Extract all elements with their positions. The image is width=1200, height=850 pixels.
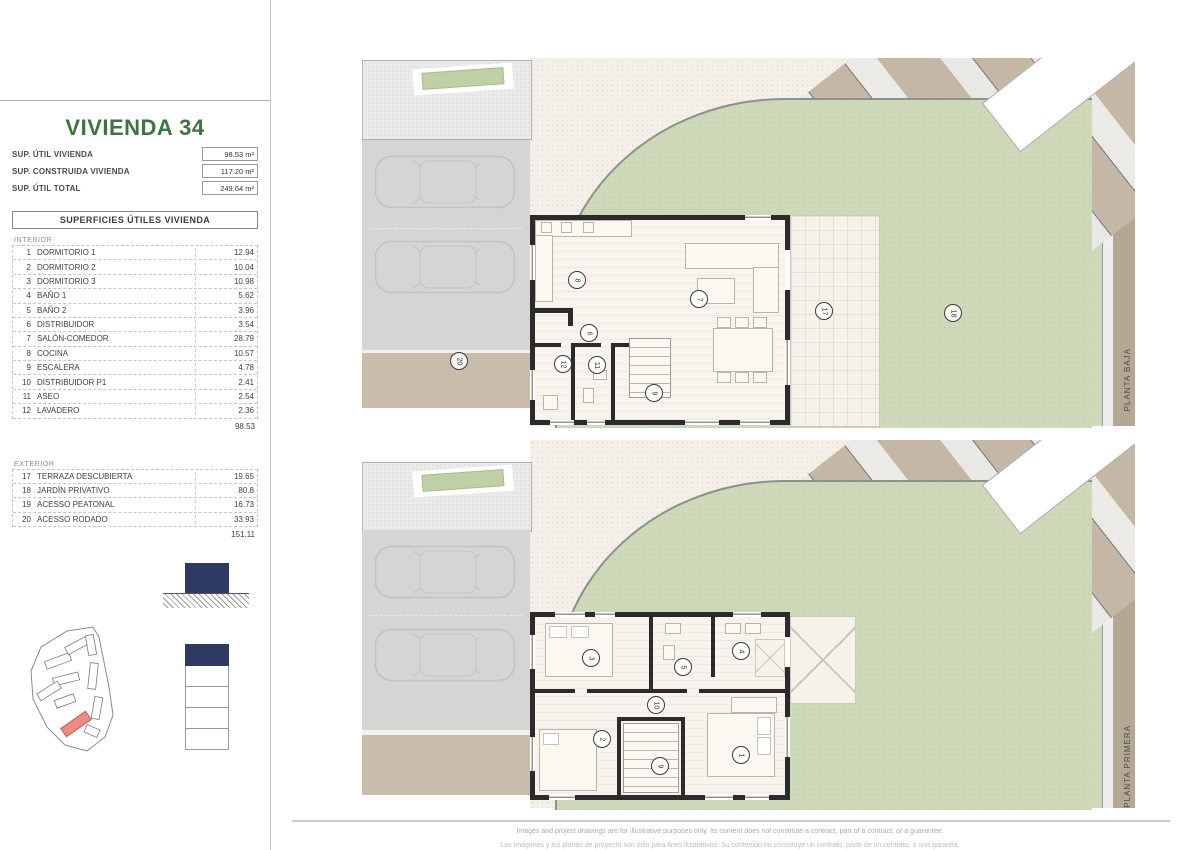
- kitchen-side-counter: [535, 235, 553, 302]
- areas-table-header: SUPERFICIES ÚTILES VIVIENDA: [12, 211, 258, 229]
- window: [705, 795, 733, 800]
- room-number-marker: 1: [732, 746, 750, 764]
- room-area: 2.36: [195, 406, 257, 415]
- room-area: 19.65: [195, 472, 257, 481]
- disclaimer-line-2: Las imágenes y los planos de proyecto so…: [290, 842, 1170, 849]
- room-name: ACESSO RODADO: [37, 515, 195, 524]
- summary-row: SUP. CONSTRUIDA VIVIENDA 117.20 m²: [12, 164, 258, 178]
- interior-wall: [617, 717, 621, 795]
- summary-value: 117.20 m²: [202, 164, 258, 178]
- table-row: 11ASEO2.54: [13, 390, 257, 404]
- row-number: 10: [13, 378, 37, 387]
- floor-cell: [185, 729, 229, 750]
- summary-value: 98.53 m²: [202, 147, 258, 161]
- planter-green: [421, 469, 504, 492]
- table-row: 8COCINA10.57: [13, 347, 257, 361]
- room-number-marker: 6: [580, 324, 598, 342]
- sidebar-divider: [270, 0, 271, 850]
- room-name: DORMITORIO 1: [37, 248, 195, 257]
- planter-notch: [412, 63, 514, 96]
- row-number: 7: [13, 334, 37, 343]
- room-number-marker: 7: [690, 290, 708, 308]
- upper-terrace: [790, 616, 856, 704]
- interior-wall: [699, 689, 785, 693]
- room-number-marker: 9: [645, 384, 663, 402]
- vehicle-access-driveway: [362, 735, 530, 795]
- table-row: 7SALÓN-COMEDOR28.79: [13, 332, 257, 346]
- window: [685, 420, 719, 425]
- floor-cell: [185, 687, 229, 708]
- room-area: 2.41: [195, 378, 257, 387]
- appliance: [583, 222, 594, 233]
- summary-row: SUP. ÚTIL VIVIENDA 98.53 m²: [12, 147, 258, 161]
- floor-cell: [185, 708, 229, 729]
- interior-wall: [681, 717, 685, 795]
- exterior-section-label: EXTERIOR: [14, 461, 258, 468]
- room-area: 80.8: [195, 486, 257, 495]
- chair: [753, 372, 767, 383]
- window: [550, 420, 574, 425]
- table-row: 12LAVADERO2.36: [13, 404, 257, 418]
- row-number: 17: [13, 472, 37, 481]
- page-title: VIVIENDA 34: [6, 115, 264, 141]
- row-number: 8: [13, 349, 37, 358]
- room-area: 12.94: [195, 248, 257, 257]
- row-number: 11: [13, 392, 37, 401]
- car-drawing-icon: [374, 628, 516, 682]
- exterior-total: 151.11: [12, 527, 258, 539]
- exterior-block: EXTERIOR 17TERRAZA DESCUBIERTA19.6518JAR…: [12, 461, 258, 540]
- row-number: 20: [13, 515, 37, 524]
- room-number-marker: 11: [588, 356, 606, 374]
- row-number: 3: [13, 277, 37, 286]
- sofa: [685, 243, 779, 269]
- room-name: DISTRIBUIDOR P1: [37, 378, 195, 387]
- room-number-marker: 18: [944, 304, 962, 322]
- public-pavement: [362, 462, 532, 532]
- interior-total: 98.53: [12, 419, 258, 431]
- interior-wall: [571, 343, 601, 347]
- chair: [717, 372, 731, 383]
- shower: [755, 639, 785, 677]
- table-row: 18JARDÍN PRIVATIVO80.8: [13, 484, 257, 498]
- row-number: 19: [13, 500, 37, 509]
- interior-section-label: INTERIOR: [14, 237, 258, 244]
- window: [733, 612, 761, 617]
- room-area: 4.78: [195, 363, 257, 372]
- room-number-marker: 8: [568, 271, 586, 289]
- areas-table: SUPERFICIES ÚTILES VIVIENDA INTERIOR 1DO…: [12, 211, 258, 539]
- sink: [745, 623, 761, 634]
- window: [740, 420, 770, 425]
- row-number: 9: [13, 363, 37, 372]
- row-number: 6: [13, 320, 37, 329]
- room-name: DISTRIBUIDOR: [37, 320, 195, 329]
- room-name: COCINA: [37, 349, 195, 358]
- interior-wall: [611, 343, 615, 420]
- floor-level-indicator: [185, 644, 229, 750]
- toilet: [583, 388, 594, 403]
- room-area: 2.54: [195, 392, 257, 401]
- room-number-marker: 9: [651, 757, 669, 775]
- chair: [735, 372, 749, 383]
- room-name: SALÓN-COMEDOR: [37, 334, 195, 343]
- staircase: [623, 723, 679, 793]
- table-row: 20ACESSO RODADO33.93: [13, 513, 257, 527]
- table-row: 4BAÑO 15.62: [13, 289, 257, 303]
- window: [595, 612, 615, 617]
- room-area: 16.73: [195, 500, 257, 509]
- vehicle-access-driveway: [362, 353, 530, 408]
- pillow: [757, 717, 771, 735]
- summary-label: SUP. ÚTIL TOTAL: [12, 184, 81, 193]
- parking-area: [362, 140, 530, 350]
- interior-rows: 1DORMITORIO 112.942DORMITORIO 210.043DOR…: [12, 245, 258, 419]
- chair: [717, 317, 731, 328]
- sink: [725, 623, 741, 634]
- window: [530, 370, 535, 400]
- row-number: 2: [13, 263, 37, 272]
- room-area: 3.54: [195, 320, 257, 329]
- sink: [665, 623, 681, 634]
- table-row: 6DISTRIBUIDOR3.54: [13, 318, 257, 332]
- appliance: [561, 222, 572, 233]
- floor-cell: [185, 666, 229, 687]
- info-sidebar: VIVIENDA 34 SUP. ÚTIL VIVIENDA 98.53 m² …: [0, 100, 270, 850]
- room-name: LAVADERO: [37, 406, 195, 415]
- summary-label: SUP. ÚTIL VIVIENDA: [12, 150, 93, 159]
- room-name: BAÑO 2: [37, 306, 195, 315]
- washer: [543, 395, 558, 410]
- table-row: 17TERRAZA DESCUBIERTA19.65: [13, 470, 257, 484]
- dining-table: [713, 328, 773, 372]
- room-area: 3.96: [195, 306, 257, 315]
- table-row: 5BAÑO 23.96: [13, 304, 257, 318]
- window: [530, 737, 535, 771]
- room-area: 10.04: [195, 263, 257, 272]
- interior-wall: [535, 689, 575, 693]
- room-number-marker: 12: [554, 355, 572, 373]
- window: [530, 635, 535, 669]
- plan-sheet: VIVIENDA 34 SUP. ÚTIL VIVIENDA 98.53 m² …: [0, 0, 1200, 850]
- car-drawing-icon: [374, 545, 516, 599]
- pillow: [571, 626, 589, 638]
- window: [555, 612, 585, 617]
- planter-notch: [412, 465, 514, 498]
- interior-wall: [535, 343, 561, 347]
- parking-stall-line: [370, 615, 522, 616]
- parking-area: [362, 530, 530, 730]
- interior-wall: [711, 617, 715, 677]
- section-diagram-ground-hatch: [163, 593, 249, 608]
- interior-wall: [617, 717, 685, 721]
- table-row: 9ESCALERA4.78: [13, 361, 257, 375]
- footer-divider: [292, 820, 1170, 822]
- pillow: [549, 626, 567, 638]
- room-area: 10.98: [195, 277, 257, 286]
- window: [745, 215, 771, 220]
- room-area: 5.62: [195, 291, 257, 300]
- room-name: DORMITORIO 3: [37, 277, 195, 286]
- room-area: 28.79: [195, 334, 257, 343]
- public-pavement: [362, 60, 532, 140]
- room-area: 33.93: [195, 515, 257, 524]
- table-row: 2DORMITORIO 210.04: [13, 260, 257, 274]
- row-number: 12: [13, 406, 37, 415]
- plan-label: PLANTA BAJA: [1123, 348, 1132, 411]
- room-area: 10.57: [195, 349, 257, 358]
- closet: [731, 697, 777, 713]
- room-number-marker: 2: [593, 730, 611, 748]
- floor-cell-highlighted: [185, 644, 229, 666]
- room-number-marker: 20: [450, 352, 468, 370]
- balcony-door-opening: [785, 637, 790, 667]
- floor-plan-planta-baja: PLANTA BAJA 87612119171820: [290, 58, 1135, 438]
- summary-value: 249.64 m²: [202, 181, 258, 195]
- toilet: [663, 645, 675, 660]
- row-number: 4: [13, 291, 37, 300]
- room-name: DORMITORIO 2: [37, 263, 195, 272]
- window: [745, 795, 769, 800]
- pillow: [757, 737, 771, 755]
- floor-plan-planta-primera: PLANTA PRIMERA 35410291: [290, 440, 1135, 820]
- window: [549, 795, 575, 800]
- room-name: ACESSO PEATONAL: [37, 500, 195, 509]
- interior-wall: [568, 308, 573, 326]
- plan-label: PLANTA PRIMERA: [1123, 725, 1132, 808]
- room-name: JARDÍN PRIVATIVO: [37, 486, 195, 495]
- summary-label: SUP. CONSTRUIDA VIVIENDA: [12, 167, 130, 176]
- row-number: 5: [13, 306, 37, 315]
- car-drawing-icon: [374, 240, 516, 294]
- room-number-marker: 10: [647, 696, 665, 714]
- interior-wall: [571, 343, 575, 420]
- section-diagram-block: [185, 563, 229, 593]
- chair: [753, 317, 767, 328]
- interior-wall: [587, 689, 687, 693]
- window: [587, 420, 605, 425]
- interior-wall: [649, 617, 653, 689]
- planter-green: [421, 67, 504, 90]
- site-location-map: [25, 623, 135, 763]
- window: [530, 245, 535, 280]
- exterior-rows: 17TERRAZA DESCUBIERTA19.6518JARDÍN PRIVA…: [12, 469, 258, 528]
- sofa-chaise: [753, 267, 779, 313]
- table-row: 10DISTRIBUIDOR P12.41: [13, 375, 257, 389]
- table-row: 3DORMITORIO 310.98: [13, 275, 257, 289]
- table-row: 19ACESSO PEATONAL16.73: [13, 498, 257, 512]
- row-number: 18: [13, 486, 37, 495]
- disclaimer-line-1: Images and project drawings are for illu…: [290, 828, 1170, 835]
- car-drawing-icon: [374, 155, 516, 209]
- summary-row: SUP. ÚTIL TOTAL 249.64 m²: [12, 181, 258, 195]
- room-name: ESCALERA: [37, 363, 195, 372]
- window: [785, 717, 790, 757]
- room-number-marker: 4: [732, 642, 750, 660]
- open-terrace: [790, 215, 880, 427]
- appliance: [541, 222, 552, 233]
- parking-stall-line: [370, 228, 522, 229]
- room-number-marker: 3: [582, 649, 600, 667]
- terrace-door-opening: [785, 250, 790, 290]
- room-number-marker: 17: [815, 302, 833, 320]
- room-number-marker: 5: [674, 658, 692, 676]
- pillow: [543, 733, 559, 745]
- room-name: TERRAZA DESCUBIERTA: [37, 472, 195, 481]
- room-name: BAÑO 1: [37, 291, 195, 300]
- row-number: 1: [13, 248, 37, 257]
- room-name: ASEO: [37, 392, 195, 401]
- chair: [735, 317, 749, 328]
- table-row: 1DORMITORIO 112.94: [13, 246, 257, 260]
- window: [785, 340, 790, 385]
